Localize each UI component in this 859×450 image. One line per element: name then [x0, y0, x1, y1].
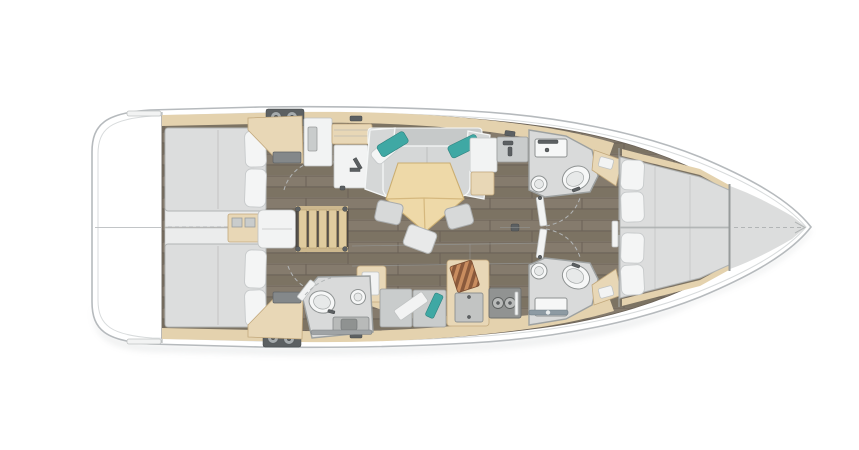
- nav-shelf: [332, 124, 372, 144]
- faucet: [508, 147, 512, 156]
- ladder-step: [339, 210, 347, 248]
- chart-table: [334, 145, 368, 188]
- stove: [489, 288, 521, 318]
- pillow: [620, 233, 644, 264]
- ladder-handle: [343, 247, 348, 252]
- faucet: [538, 140, 558, 144]
- ladder-handle: [296, 247, 301, 252]
- nav-lamp-base: [350, 168, 360, 172]
- oven-knob: [467, 295, 470, 298]
- faucet: [503, 141, 513, 145]
- pillow: [244, 250, 266, 289]
- pillow: [620, 159, 645, 190]
- floor-plan-canvas: [0, 0, 859, 450]
- mid-cabinet-hatch: [232, 218, 242, 227]
- pillow: [620, 264, 645, 295]
- ladder-step: [329, 210, 337, 248]
- ladder-handle: [296, 207, 301, 212]
- side-counter: [497, 137, 528, 162]
- wardrobe-handle: [308, 127, 317, 151]
- ladder-step: [319, 210, 327, 248]
- aft-desk-hatch-top: [273, 152, 301, 163]
- pillow: [620, 192, 644, 223]
- wash-basin-inner: [535, 180, 544, 189]
- traveler-track-top: [127, 111, 161, 116]
- oven-knob: [467, 315, 470, 318]
- latch: [340, 186, 345, 190]
- cabin-door: [612, 221, 618, 247]
- ladder-step: [309, 210, 317, 248]
- mid-cabinet-hatch: [245, 218, 255, 227]
- aft-desk-hatch-bottom: [273, 292, 301, 303]
- aft-cabin-starboard: [165, 128, 267, 227]
- faucet-knob: [546, 310, 550, 314]
- ladder-step: [299, 210, 307, 248]
- burner-center: [497, 302, 500, 305]
- drain: [545, 148, 549, 152]
- head-sink-basin: [341, 319, 357, 330]
- door-hinge: [538, 255, 542, 259]
- cabinet-door: [471, 172, 494, 195]
- pillow: [244, 169, 266, 208]
- yacht-floor-plan: [0, 0, 859, 450]
- vent-top-1: [350, 116, 362, 121]
- burner-center: [509, 302, 512, 305]
- companionway-ladder: [296, 206, 348, 252]
- ladder-handle: [343, 207, 348, 212]
- aft-cabin-port: [165, 228, 267, 327]
- stove-rail: [515, 292, 518, 315]
- traveler-track-bottom: [127, 339, 161, 344]
- shower-drain-inner: [354, 293, 362, 301]
- wash-basin-inner: [535, 267, 544, 276]
- side-table: [470, 138, 497, 172]
- towel-bar: [311, 330, 372, 335]
- door-hinge: [538, 196, 542, 200]
- vent-top-2: [505, 130, 516, 136]
